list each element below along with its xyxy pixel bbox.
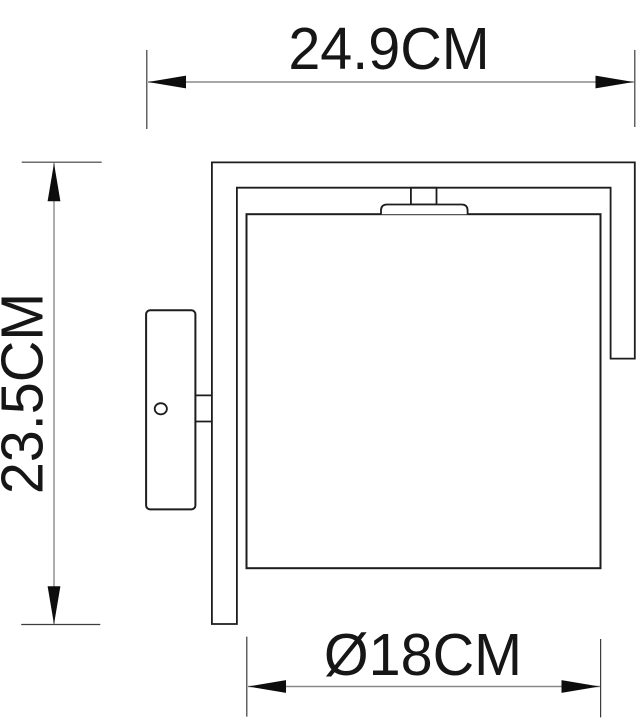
svg-text:Ø18CM: Ø18CM [324,622,522,688]
svg-text:24.9CM: 24.9CM [288,17,489,83]
svg-text:23.5CM: 23.5CM [0,293,56,494]
